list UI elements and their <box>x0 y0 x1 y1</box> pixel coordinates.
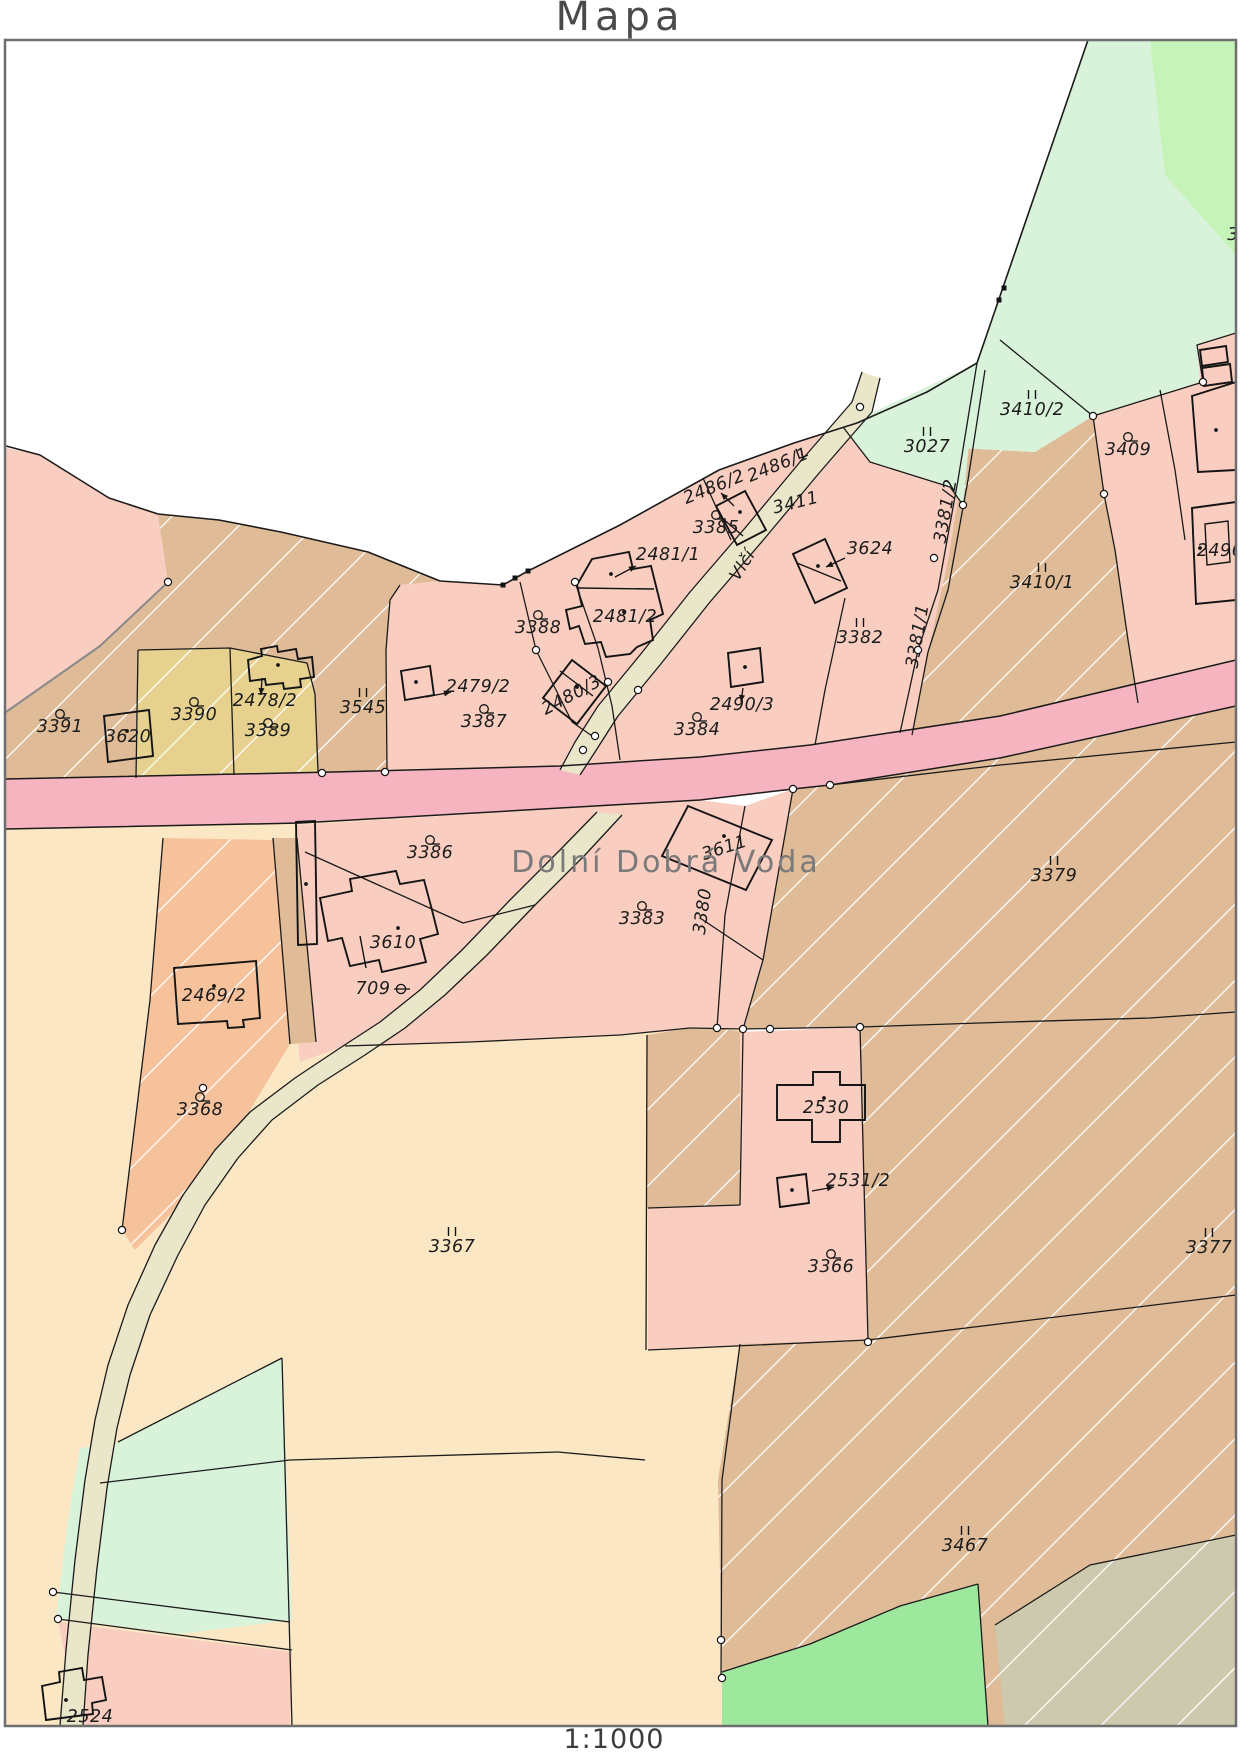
parcel-label-3545: 3545 <box>340 698 387 718</box>
map-canvas: Mapa 30273410/2340924962486/22486/134113… <box>0 0 1240 1754</box>
bldg-2531-2-dot <box>790 1188 794 1192</box>
parcel-label-2481-2: 2481/2 <box>593 607 658 627</box>
vertex-marker <box>856 1023 863 1030</box>
bldg-2479-2-dot <box>414 680 418 684</box>
vertex-marker <box>717 1636 724 1643</box>
bldg-3610-dot <box>396 926 400 930</box>
parcel-label-3388: 3388 <box>515 618 562 638</box>
bldg-2481-inner-0 <box>578 588 654 589</box>
boundary-dot <box>1002 286 1007 291</box>
parcel-label-3382: 3382 <box>837 628 884 648</box>
parcel-label-2490-3: 2490/3 <box>710 695 775 715</box>
vertex-marker <box>1199 378 1206 385</box>
parcel-label-3368: 3368 <box>177 1100 224 1120</box>
region-pink-below-road <box>288 800 745 1062</box>
vertex-marker <box>930 554 937 561</box>
vertex-marker <box>164 578 171 585</box>
place-label: Dolní Dobrá Voda <box>511 845 820 880</box>
parcel-label-2524: 2524 <box>67 1707 114 1727</box>
parcel-label-3620: 3620 <box>105 727 152 747</box>
bldg-3385-dot <box>738 510 742 514</box>
bldg-2524-dot <box>64 1698 68 1702</box>
vertex-marker <box>856 403 863 410</box>
vertex-marker <box>118 1226 125 1233</box>
parcel-label-3379: 3379 <box>1031 866 1078 886</box>
vertex-marker <box>579 746 586 753</box>
vertex-marker <box>381 768 388 775</box>
bldg-3624-dot <box>816 564 820 568</box>
parcel-label-709: 709 <box>356 979 391 999</box>
parcel-label-3389: 3389 <box>245 721 292 741</box>
parcel-label-3366: 3366 <box>808 1257 855 1277</box>
bldg-2481-dot <box>609 572 613 576</box>
parcel-label-3386: 3386 <box>407 843 454 863</box>
vertex-marker <box>766 1025 773 1032</box>
region-hatch-tan-band <box>647 1028 743 1208</box>
vertex-marker <box>739 1025 746 1032</box>
bldg-right-a-dot <box>1214 428 1218 432</box>
vertex-marker <box>54 1615 61 1622</box>
vertex-marker <box>199 1084 206 1091</box>
parcel-label-3610: 3610 <box>370 933 417 953</box>
cadastral-map-page: Mapa 30273410/2340924962486/22486/134113… <box>0 0 1240 1754</box>
region-hatch-khaki-parcels <box>136 648 318 778</box>
parcel-label-2531-2: 2531/2 <box>826 1171 891 1191</box>
parcel-label-2478-2: 2478/2 <box>233 691 298 711</box>
parcel-label-3624: 3624 <box>847 539 894 559</box>
vertex-marker <box>532 646 539 653</box>
parcel-label-3390: 3390 <box>171 705 218 725</box>
boundary-dot <box>501 583 506 588</box>
parcel-label-3410-2: 3410/2 <box>1000 400 1065 420</box>
boundary-dot <box>513 576 518 581</box>
vertex-marker <box>718 1674 725 1681</box>
parcel-label-3377: 3377 <box>1186 1238 1233 1258</box>
parcel-label-3387: 3387 <box>461 712 508 732</box>
vertex-marker <box>1089 412 1096 419</box>
vertex-marker <box>571 578 578 585</box>
boundary-dot <box>997 298 1002 303</box>
map-content: 30273410/2340924962486/22486/13411338524… <box>5 40 1240 1727</box>
vertex-marker <box>49 1588 56 1595</box>
parcel-label-3467: 3467 <box>942 1536 989 1556</box>
parcel-label-2530: 2530 <box>803 1098 850 1118</box>
vertex-marker <box>1100 490 1107 497</box>
parcel-label-3367: 3367 <box>429 1237 476 1257</box>
parcel-label-3384: 3384 <box>674 720 721 740</box>
map-title: Mapa <box>556 0 685 40</box>
parcel-label-3391: 3391 <box>37 717 84 737</box>
bldg-strip-dot <box>304 882 308 886</box>
parcel-label-3383: 3383 <box>619 909 666 929</box>
vertex-marker <box>959 501 966 508</box>
vertex-marker <box>591 732 598 739</box>
vertex-marker <box>713 1024 720 1031</box>
parcel-label-2481-1: 2481/1 <box>636 545 701 565</box>
parcel-label-3410-1: 3410/1 <box>1010 573 1075 593</box>
vertex-marker <box>914 646 921 653</box>
bldg-2490-3-dot <box>743 665 747 669</box>
parcel-label-2469-2: 2469/2 <box>182 986 247 1006</box>
parcel-label-3385: 3385 <box>693 518 740 538</box>
parcel-label-2479-2: 2479/2 <box>446 677 511 697</box>
parcel-label-2496: 2496 <box>1197 541 1240 561</box>
vertex-marker <box>604 678 611 685</box>
parcel-label-3409: 3409 <box>1105 440 1152 460</box>
boundary-dot <box>526 569 531 574</box>
vertex-marker <box>634 686 641 693</box>
vertex-marker <box>318 769 325 776</box>
map-scale-label: 1:1000 <box>564 1724 665 1754</box>
bldg-2478-2-dot <box>276 663 280 667</box>
vertex-marker <box>789 785 796 792</box>
parcel-label-3027: 3027 <box>904 437 951 457</box>
vertex-marker <box>826 781 833 788</box>
vertex-marker <box>864 1338 871 1345</box>
